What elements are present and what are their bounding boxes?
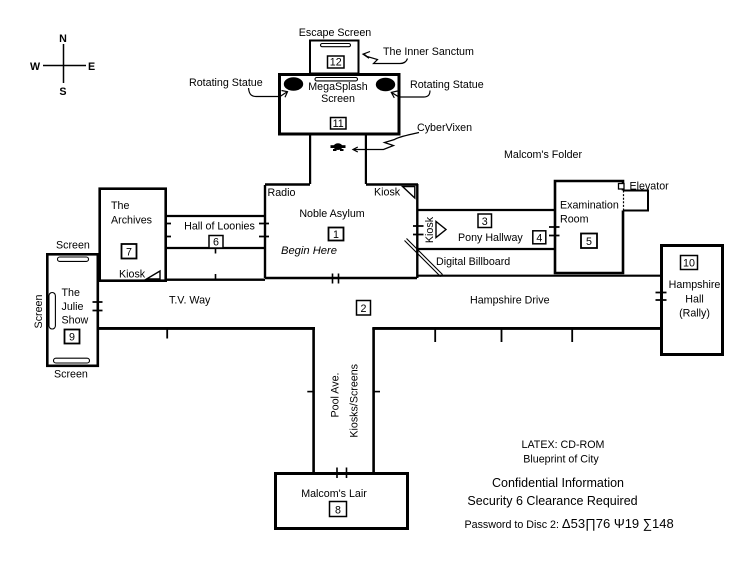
svg-text:Kiosk: Kiosk [119,269,146,281]
svg-text:6: 6 [213,237,219,249]
svg-text:Show: Show [62,315,89,327]
svg-text:Room: Room [560,214,589,226]
svg-text:MegaSplash: MegaSplash [308,81,367,93]
svg-text:7: 7 [126,246,132,258]
svg-text:8: 8 [335,504,341,516]
svg-text:N: N [59,33,67,45]
svg-text:Examination: Examination [560,200,619,212]
svg-text:Radio: Radio [268,187,296,199]
svg-text:Kiosk: Kiosk [424,216,436,243]
svg-text:Hall of Loonies: Hall of Loonies [184,221,255,233]
svg-text:10: 10 [683,258,695,270]
svg-text:11: 11 [333,118,344,130]
svg-text:5: 5 [586,236,592,248]
svg-text:Screen: Screen [54,369,88,381]
svg-text:Pony Hallway: Pony Hallway [458,232,523,244]
svg-text:The Inner Sanctum: The Inner Sanctum [383,46,474,58]
svg-text:Rotating Statue: Rotating Statue [410,79,484,91]
svg-text:Digital Billboard: Digital Billboard [436,256,510,268]
svg-text:W: W [30,61,41,73]
svg-text:S: S [59,86,66,98]
svg-text:Pool Ave.: Pool Ave. [330,373,342,418]
svg-text:Noble Asylum: Noble Asylum [299,208,364,220]
svg-text:1: 1 [333,229,339,241]
svg-text:Julie: Julie [62,301,84,313]
svg-text:T.V. Way: T.V. Way [169,295,211,307]
svg-text:LATEX: CD-ROM: LATEX: CD-ROM [522,439,605,451]
svg-text:12: 12 [330,57,342,69]
svg-text:Screen: Screen [56,240,90,252]
svg-text:E: E [88,61,95,73]
svg-text:Hall: Hall [685,294,703,306]
svg-text:Screen: Screen [321,93,355,105]
svg-text:CyberVixen: CyberVixen [417,122,472,134]
svg-text:Escape Screen: Escape Screen [299,27,372,39]
svg-text:Screen: Screen [33,295,45,329]
svg-text:Hampshire Drive: Hampshire Drive [470,295,550,307]
svg-text:The: The [62,287,80,299]
svg-text:Kiosk: Kiosk [374,187,401,199]
svg-text:Security 6 Clearance Required: Security 6 Clearance Required [467,494,637,508]
svg-text:Malcom's Lair: Malcom's Lair [301,488,367,500]
svg-text:3: 3 [482,216,488,228]
svg-text:Begin Here: Begin Here [281,245,337,257]
svg-text:Hampshire: Hampshire [669,279,721,291]
svg-text:(Rally): (Rally) [679,308,710,320]
svg-text:Archives: Archives [111,215,152,227]
svg-text:Blueprint of City: Blueprint of City [523,454,599,466]
svg-text:Malcom's Folder: Malcom's Folder [504,149,582,161]
svg-text:Password to Disc 2: Δ53∏76 Ψ1: Password to Disc 2: Δ53∏76 Ψ19 ∑148 [465,516,674,531]
svg-text:Kiosks/Screens: Kiosks/Screens [349,364,361,438]
svg-text:9: 9 [69,332,75,344]
svg-text:4: 4 [536,232,542,244]
svg-text:Confidential Information: Confidential Information [492,476,624,490]
svg-text:2: 2 [361,303,367,315]
svg-text:Rotating Statue: Rotating Statue [189,77,263,89]
svg-text:The: The [111,200,129,212]
